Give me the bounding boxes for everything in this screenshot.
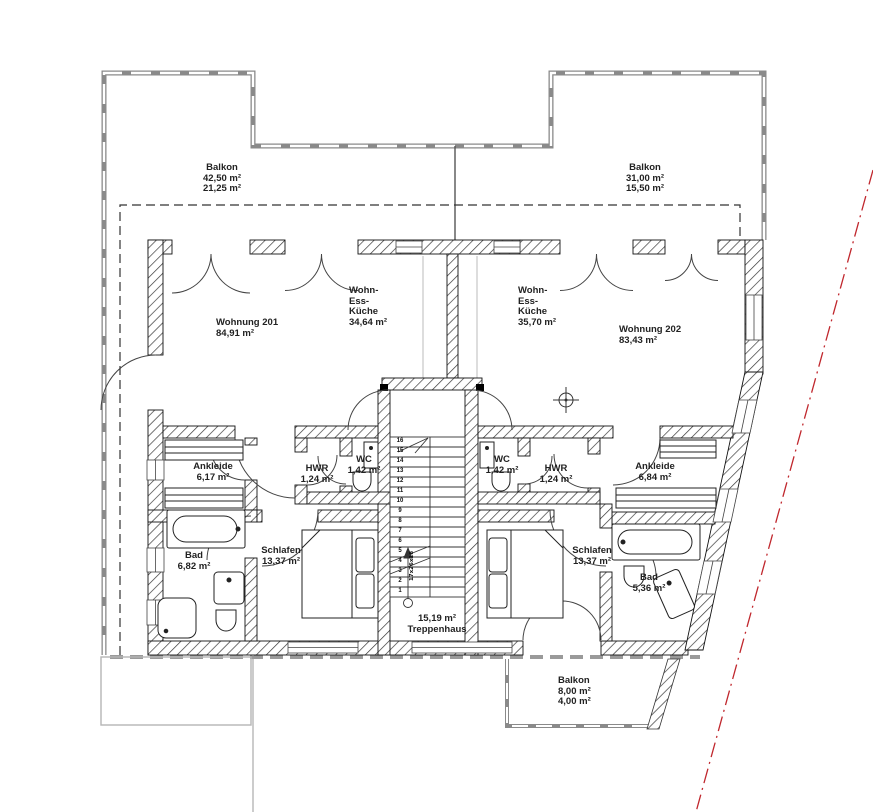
shower bbox=[158, 598, 196, 638]
stair-step-number: 3 bbox=[390, 568, 410, 575]
stair-step-number: 7 bbox=[390, 528, 410, 535]
label-apartment-201: Wohnung 201 84,91 m² bbox=[216, 318, 278, 339]
stair-step-number: 13 bbox=[390, 468, 410, 475]
stair-step-number: 6 bbox=[390, 538, 410, 545]
crosshair-symbol bbox=[553, 387, 579, 413]
label-schlafen-left: Schlafen 13,37 m² bbox=[261, 546, 301, 567]
stair-step-number: 16 bbox=[390, 438, 410, 445]
stair-step-number: 8 bbox=[390, 518, 410, 525]
label-balcony-bottom: Balkon 8,00 m² 4,00 m² bbox=[558, 676, 591, 708]
label-ankleide-right: Ankleide 6,84 m² bbox=[635, 462, 675, 483]
stair-step-number: 1 bbox=[390, 588, 410, 595]
stair-step-number: 12 bbox=[390, 478, 410, 485]
label-apartment-202: Wohnung 202 83,43 m² bbox=[619, 325, 681, 346]
label-wek-right: Wohn- Ess- Küche 35,70 m² bbox=[518, 286, 556, 328]
toilet bbox=[216, 610, 236, 631]
floor-plan-drawing bbox=[0, 0, 873, 812]
stair-step-number: 11 bbox=[390, 488, 410, 495]
label-bad-right: Bad 5,36 m² bbox=[633, 573, 666, 594]
stair-step-number: 14 bbox=[390, 458, 410, 465]
label-ankleide-left: Ankleide 6,17 m² bbox=[193, 462, 233, 483]
washbasin bbox=[214, 572, 244, 604]
label-wc-right: WC 1,42 m² bbox=[486, 455, 519, 476]
floor-plan-page: Balkon 42,50 m² 21,25 m² Balkon 31,00 m²… bbox=[0, 0, 873, 812]
wardrobe bbox=[165, 440, 243, 460]
label-hwr-left: HWR 1,24 m² bbox=[301, 464, 334, 485]
label-wc-left: WC 1,42 m² bbox=[348, 455, 381, 476]
stair-step-number: 5 bbox=[390, 548, 410, 555]
stair-step-number: 9 bbox=[390, 508, 410, 515]
label-balcony-top-left: Balkon 42,50 m² 21,25 m² bbox=[203, 163, 241, 195]
label-balcony-top-right: Balkon 31,00 m² 15,50 m² bbox=[626, 163, 664, 195]
label-wek-left: Wohn- Ess- Küche 34,64 m² bbox=[349, 286, 387, 328]
label-schlafen-right: Schlafen 13,37 m² bbox=[572, 546, 612, 567]
stair-step-number: 10 bbox=[390, 498, 410, 505]
stair-step-number: 2 bbox=[390, 578, 410, 585]
stair-step-number: 15 bbox=[390, 448, 410, 455]
bottom-balcony bbox=[507, 659, 680, 729]
stair-step-number: 4 bbox=[390, 558, 410, 565]
label-bad-left: Bad 6,82 m² bbox=[178, 551, 211, 572]
lower-terrace-outline bbox=[101, 657, 251, 725]
label-hwr-right: HWR 1,24 m² bbox=[540, 464, 573, 485]
label-treppenhaus: 15,19 m² Treppenhaus bbox=[407, 614, 466, 635]
